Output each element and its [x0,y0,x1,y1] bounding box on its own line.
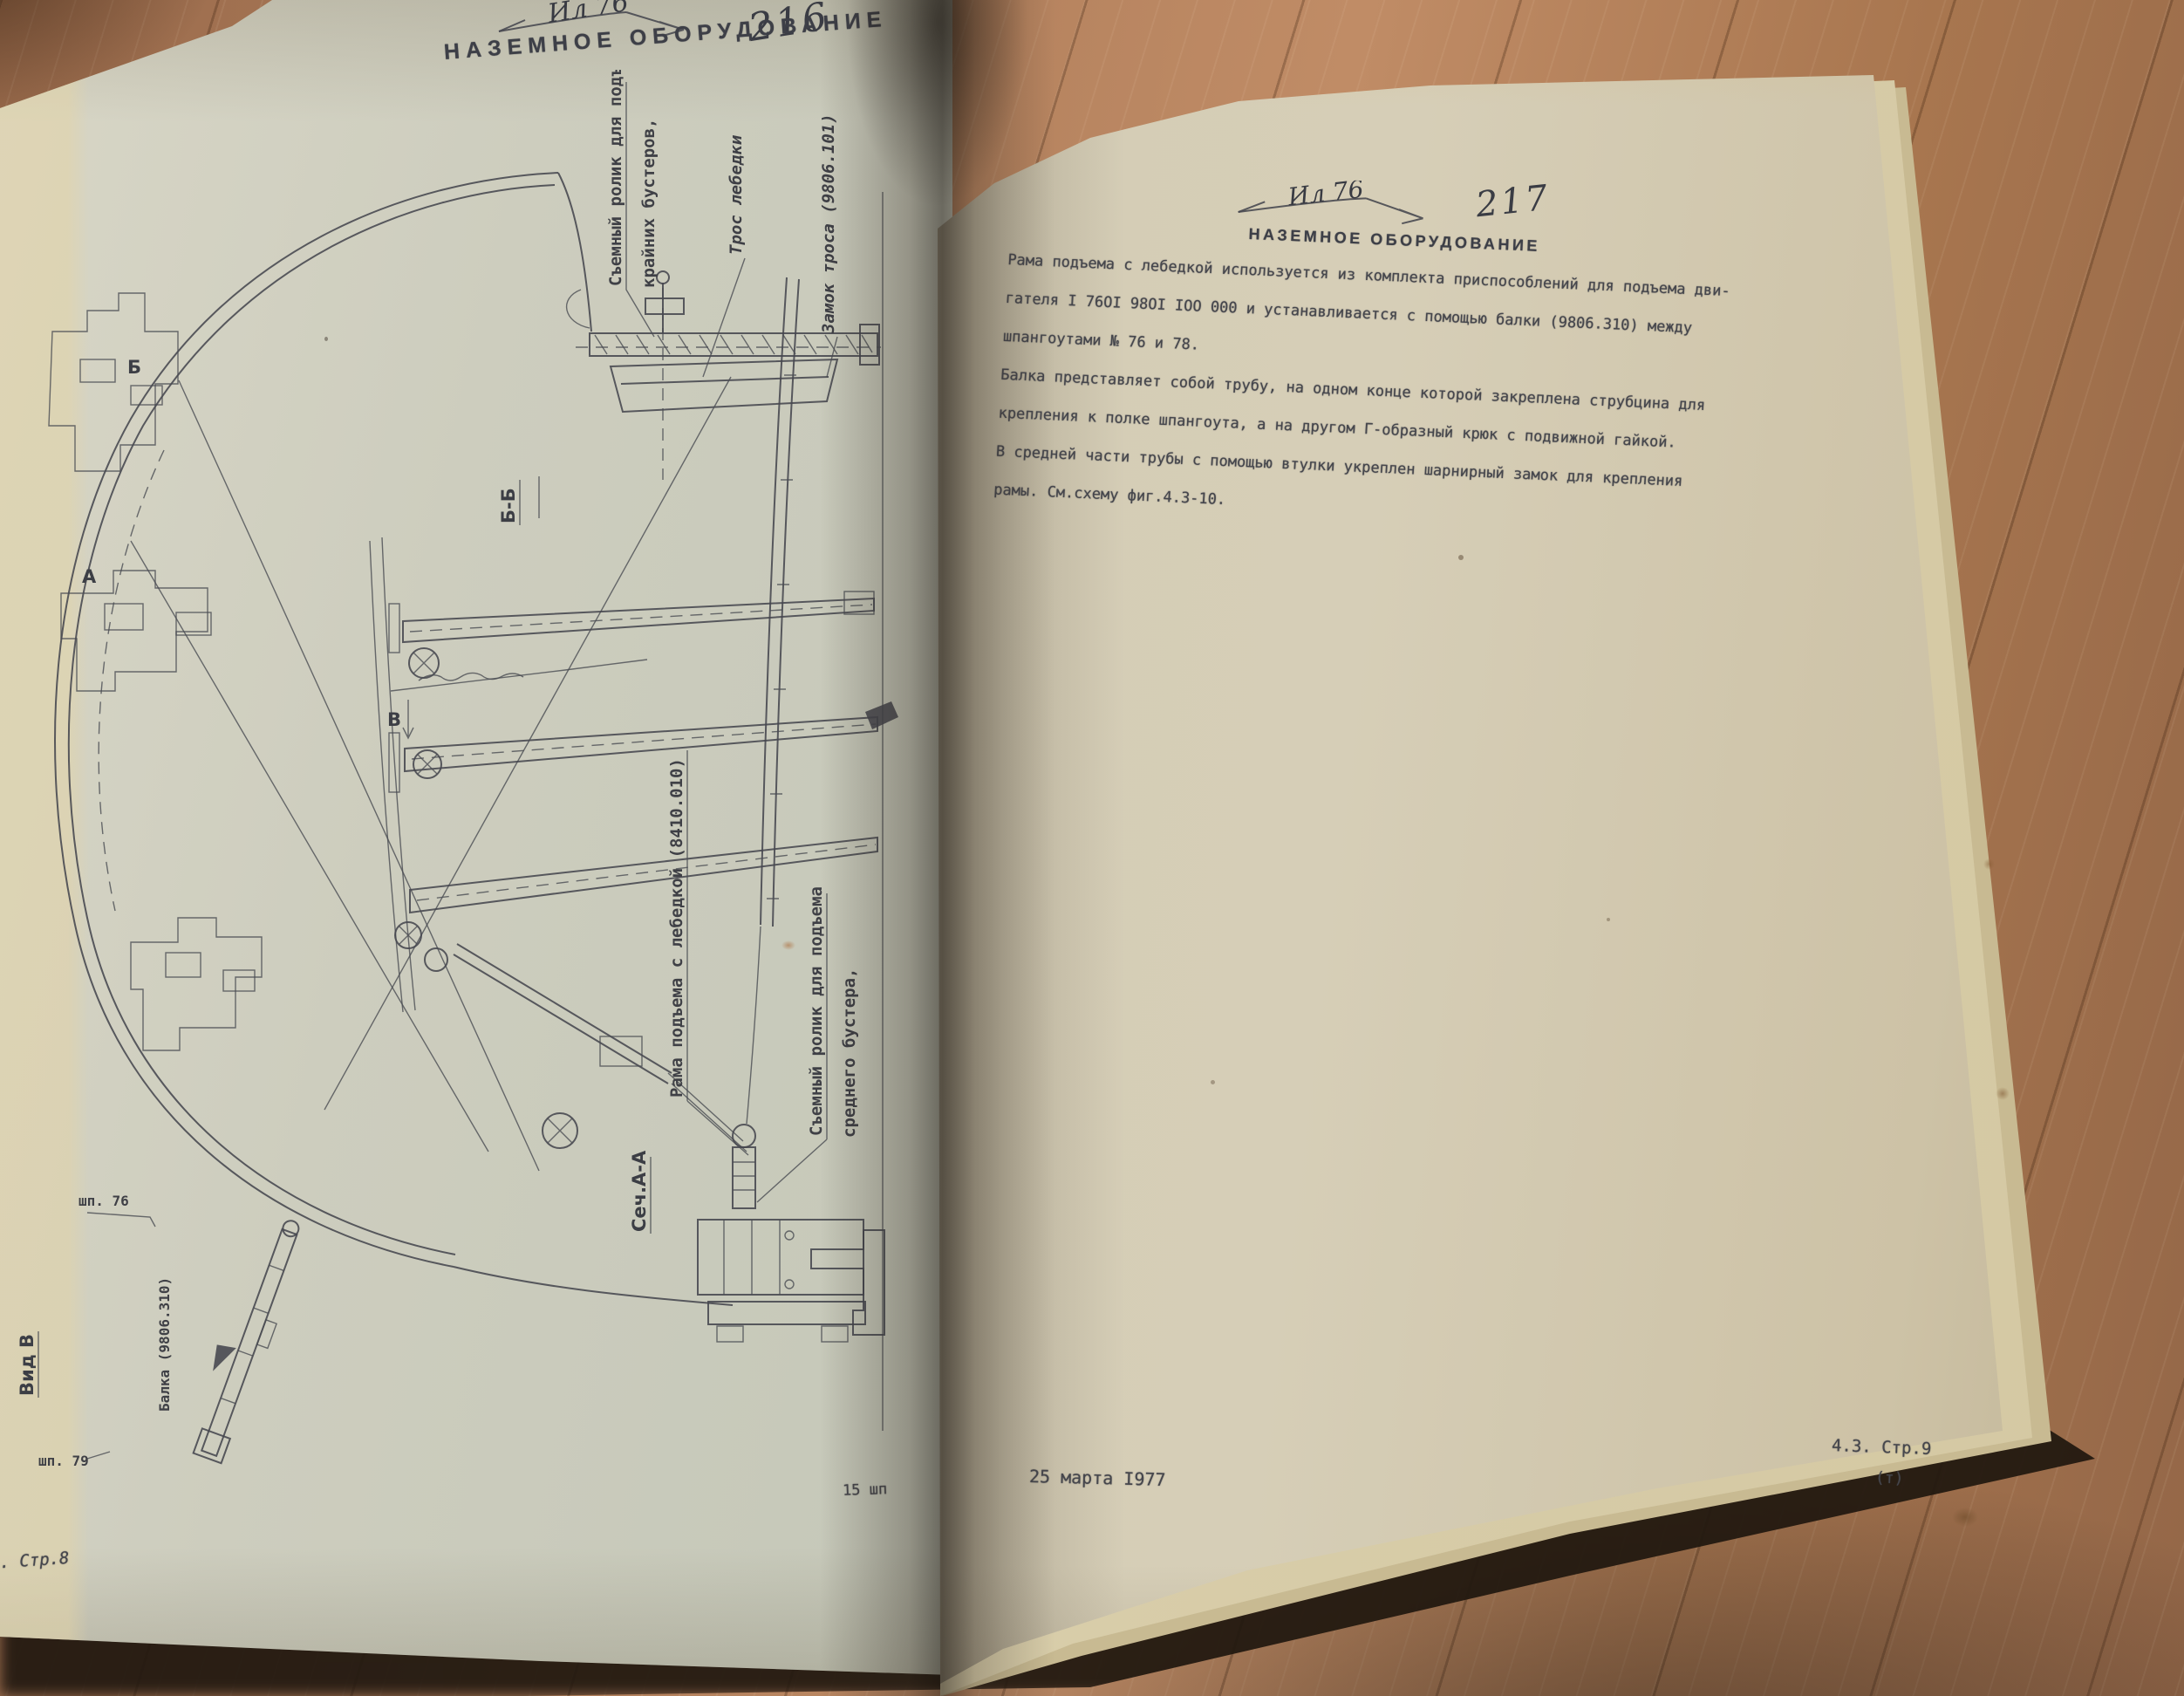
beam-bracket [645,298,684,314]
figure-label-winch-cable: Трос лебедки [727,134,746,255]
door-cut-bottom [454,1267,733,1305]
clamp-bolt-threads [733,1162,755,1190]
equipment-box-2a [105,604,143,630]
right-page-paragraph: Рама подъема с лебедкой используется из … [992,251,1775,553]
clamp-foot-1 [717,1326,743,1342]
side-rail-2 [382,537,415,1010]
figure-label-lift-frame: Рама подъема с лебедкой (8410.010) [667,758,686,1098]
right-footer-date: 25 марта I977 [1029,1466,1166,1490]
figure-label-frame76: шп. 76 [78,1193,129,1209]
clamp-bolt-2 [785,1280,794,1289]
right-page-number: 217 [1474,178,1553,226]
door-frame-lower [747,927,761,1124]
frame79-leader [87,1452,110,1459]
equipment-box-3a [166,953,201,977]
equipment-box-1a [80,359,115,382]
figure-marker-v: В [387,709,401,730]
figure-label-cable-lock: Замок троса (9806.101) [819,113,838,334]
figure-marker-a: А [82,566,97,587]
clamp-body [698,1220,863,1295]
clamp-bolt [733,1147,755,1208]
left-footer-signature: 15 шп [843,1481,888,1500]
lift-arm-1 [403,598,874,642]
pulley-2-spokes [418,755,437,774]
view-b-beam-body [201,1229,297,1456]
fuselage-dashed-arc [99,450,164,911]
marker-v-arrow [403,700,413,738]
clamp-foot-2 [822,1326,848,1342]
lift-arm-2-centerline [412,724,876,759]
arm-1-mount [389,604,399,653]
equipment-box-2 [61,571,208,691]
figure-label-section-bb: Б-Б [498,488,519,523]
figure-marker-b: Б [127,357,141,378]
right-footer-ref-note: (т) [1875,1468,1904,1487]
right-footer-ref: 4.3. Стр.9 [1832,1436,1932,1459]
equipment-box-3 [131,918,262,1050]
photo-scene: Ил 76 216 НАЗЕМНОЕ ОБОРУДОВАНИЕ [0,0,2184,1696]
view-b-beam-arrow [208,1342,235,1376]
middle-roller-arm [454,944,672,1084]
beam-bolt-head [657,271,669,284]
door-cut-top [558,173,591,332]
figure-label-roller-middle-1: Съемный ролик для подъема [807,886,826,1136]
fuselage-outer-arc [55,173,558,1267]
cable-2 [131,541,488,1152]
lift-arm-2 [405,717,877,771]
fuselage-inner-arc [69,185,555,1255]
leader-lift-frame [687,750,748,1155]
top-beam-hatch [595,335,872,354]
beam-end-plate [860,325,879,365]
top-beam [590,333,877,356]
middle-roller-spokes [548,1118,572,1143]
frame76-leader [87,1213,155,1227]
section-bb-lines [520,476,539,525]
pulley-1-spokes [413,653,434,674]
beam-left-hook [567,290,590,328]
side-rail-1 [370,541,403,1012]
view-b-beam-ticks [221,1265,283,1403]
figure-label-frame79: шп. 79 [38,1453,89,1469]
clamp-body-lines [724,1220,780,1295]
figure-label-beam-ref: Балка (9806.310) [156,1277,173,1412]
figure-label-roller-outer-2: крайних бустеров, [639,119,659,288]
beam-support [611,359,837,412]
leader-winch-cable [703,258,745,377]
clamp-bolt-1 [785,1231,794,1240]
technical-figure: Съемный ролик для подъема крайних бустер… [0,70,898,1501]
cable-1 [179,380,539,1171]
right-model-handwriting: Ил 76 [1286,175,1365,212]
figure-label-roller-outer-1: Съемный ролик для подъема [606,70,625,286]
view-b-beam [180,1211,311,1465]
figure-label-view-v: Вид В [17,1334,38,1396]
view-b-beam-eye [281,1219,301,1239]
pulley-4 [425,948,447,971]
arm-2-fitting [865,701,898,729]
clamp-hook [853,1230,884,1335]
equipment-box-3b [223,970,255,991]
figure-label-section-aa: Сеч.А-А [629,1150,650,1232]
left-model-handwriting: Ил 76 [545,0,631,30]
figure-label-roller-middle-2: среднего бустера, [840,968,859,1138]
